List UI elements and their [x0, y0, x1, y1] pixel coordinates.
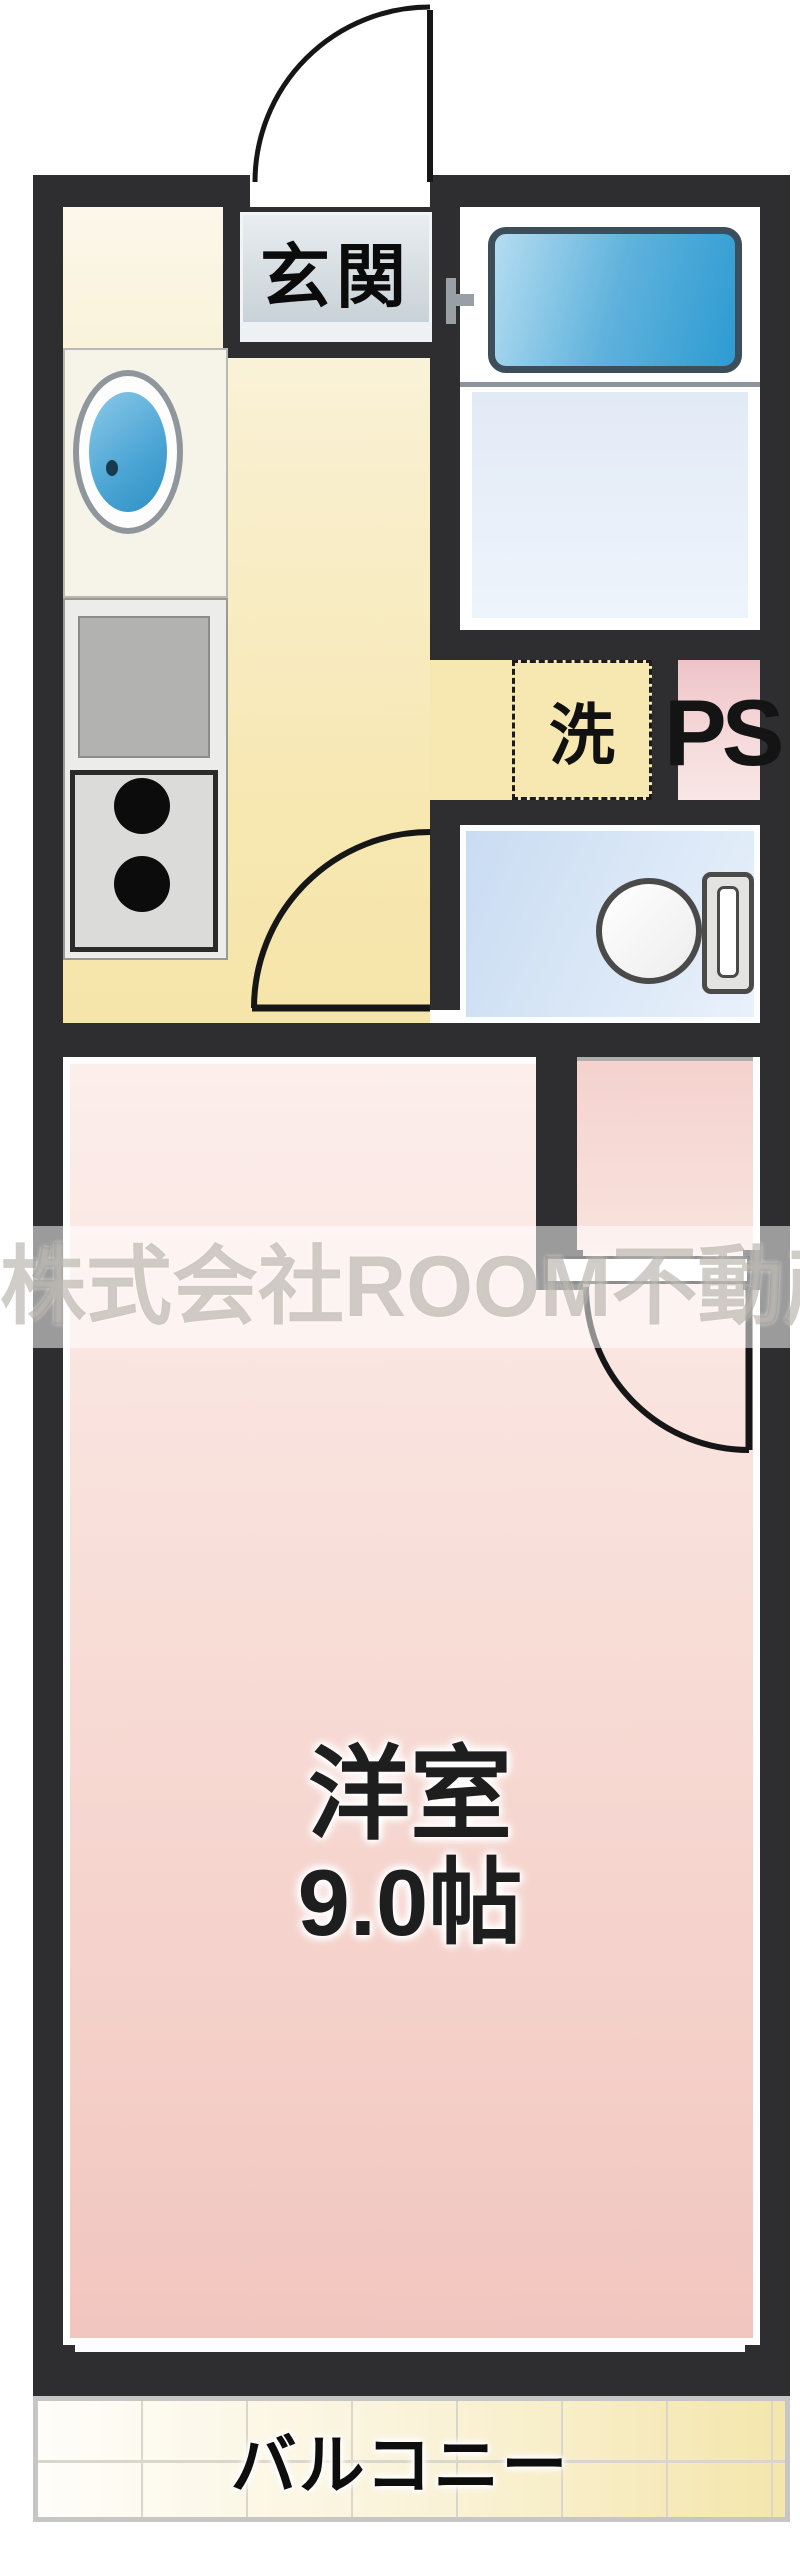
pipe-space-label: PS	[664, 686, 800, 780]
room-name-label: 洋室	[110, 1742, 710, 1849]
floorplan-image: 洗 玄関 PS 洋室	[0, 0, 800, 2573]
watermark-text: 株式会社ROOM不動産	[0, 1226, 800, 1348]
room-size-label: 9.0帖	[110, 1849, 710, 1957]
main-room-label: 洋室 9.0帖	[110, 1742, 710, 1957]
entrance-door-arc	[255, 7, 430, 182]
balcony-label: バルコニー	[120, 2412, 680, 2508]
kitchen-door-arc	[254, 832, 430, 1008]
